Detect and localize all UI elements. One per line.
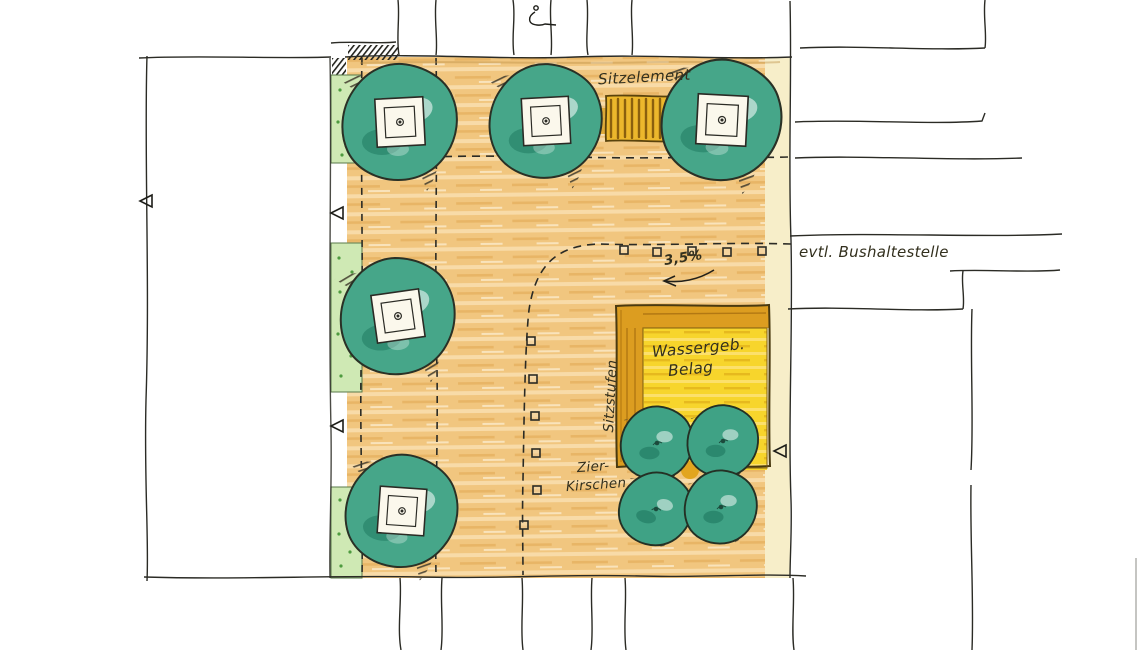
bus-stop-street-edge bbox=[790, 234, 1062, 236]
plan-drawing bbox=[0, 0, 1140, 650]
marker-triangle bbox=[331, 207, 343, 219]
site-plan-canvas: Sitzelement evtl. Bushaltestelle 3,5% Wa… bbox=[0, 0, 1140, 650]
building-left-top bbox=[139, 57, 331, 58]
marker-triangle bbox=[331, 420, 343, 432]
cherry-tree bbox=[687, 405, 758, 478]
plaza-right-edge bbox=[790, 1, 792, 578]
building-left-edge bbox=[146, 56, 148, 581]
lamp-symbol bbox=[530, 6, 556, 25]
cherry-tree bbox=[685, 470, 757, 545]
cherry-tree bbox=[621, 406, 693, 481]
